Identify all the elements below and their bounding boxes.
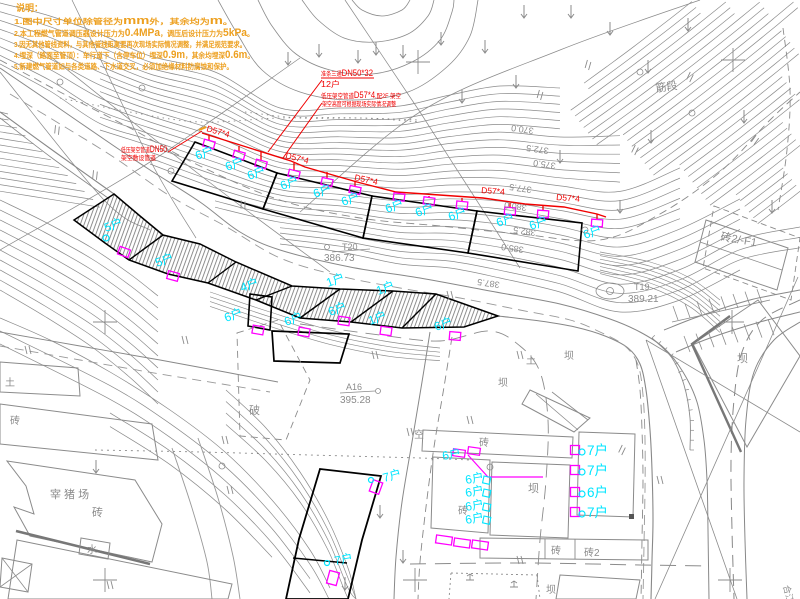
svg-text:D57*4: D57*4	[481, 185, 506, 197]
svg-text:3.因无其他管线资料，与其他管线距离要再次现场实际情况调整，: 3.因无其他管线资料，与其他管线距离要再次现场实际情况调整，并满足规范要求。	[14, 39, 246, 49]
svg-text:7户: 7户	[381, 466, 403, 485]
svg-text:7户: 7户	[587, 442, 608, 458]
svg-text:380.0: 380.0	[504, 200, 528, 213]
svg-text:6户: 6户	[581, 221, 604, 241]
svg-text:砖: 砖	[458, 504, 468, 517]
svg-text:7户: 7户	[587, 504, 608, 520]
svg-text:375.0: 375.0	[533, 158, 557, 171]
svg-text:土: 土	[526, 354, 536, 367]
svg-text:377.5: 377.5	[509, 182, 533, 195]
svg-text:说明：: 说明：	[16, 2, 43, 13]
svg-text:架空高度可根据现场实际情况调整: 架空高度可根据现场实际情况调整	[322, 99, 396, 108]
svg-text:372.5: 372.5	[526, 143, 550, 156]
svg-text:坝: 坝	[737, 351, 748, 365]
svg-text:砖: 砖	[10, 414, 20, 427]
svg-text:宰 猪 场: 宰 猪 场	[50, 487, 89, 501]
svg-text:低压架空管道DN50: 低压架空管道DN50	[121, 144, 167, 154]
svg-text:砖: 砖	[479, 436, 489, 449]
svg-text:D57*4: D57*4	[556, 192, 581, 204]
svg-text:T19: T19	[634, 282, 650, 292]
svg-text:6户: 6户	[441, 445, 462, 463]
svg-text:破: 破	[249, 403, 260, 417]
svg-text:12户: 12户	[321, 79, 340, 89]
svg-text:筋段: 筋段	[654, 78, 678, 95]
svg-text:1.图中尺寸单位除管径为mm外，其余均为m。: 1.图中尺寸单位除管径为mm外，其余均为m。	[14, 15, 233, 27]
svg-text:6户: 6户	[311, 180, 334, 200]
svg-text:架空敷设管道: 架空敷设管道	[121, 153, 156, 162]
svg-text:低压架空管道D57*4,配2F 架空: 低压架空管道D57*4,配2F 架空	[321, 90, 401, 100]
svg-text:6户: 6户	[587, 484, 608, 500]
svg-text:6户: 6户	[339, 188, 362, 208]
svg-text:7户: 7户	[587, 462, 608, 478]
svg-text:386.73: 386.73	[324, 253, 355, 264]
svg-text:砖2: 砖2	[584, 546, 600, 559]
svg-text:砖: 砖	[92, 505, 103, 519]
svg-text:A16: A16	[346, 382, 362, 392]
svg-text:坝: 坝	[498, 377, 508, 389]
svg-text:389.21: 389.21	[628, 294, 659, 305]
svg-text:土: 土	[5, 376, 15, 389]
svg-text:合江: 合江	[781, 584, 796, 599]
svg-text:砖: 砖	[551, 544, 561, 557]
svg-text:387.5: 387.5	[477, 277, 501, 290]
svg-text:坝: 坝	[528, 481, 539, 495]
svg-text:坝: 坝	[546, 584, 556, 596]
svg-text:6户: 6户	[193, 142, 216, 162]
svg-text:2.本工程燃气管道调压器设计压力为0.4MPa，调压后设计压: 2.本工程燃气管道调压器设计压力为0.4MPa，调压后设计压力为5kPa。	[14, 27, 254, 39]
svg-text:水: 水	[87, 544, 97, 556]
svg-text:7户: 7户	[333, 550, 354, 568]
svg-text:370.0: 370.0	[511, 123, 535, 136]
svg-text:1户: 1户	[324, 269, 347, 289]
svg-text:6户: 6户	[494, 209, 517, 229]
svg-text:6户: 6户	[223, 153, 246, 173]
svg-text:385.0: 385.0	[501, 242, 525, 255]
svg-text:395.28: 395.28	[340, 395, 371, 406]
svg-text:4.埋深（路面至管顶）：车行道下（含停车位）埋深0.9m，其: 4.埋深（路面至管顶）：车行道下（含停车位）埋深0.9m，其余均埋深0.6m。	[14, 49, 254, 61]
svg-text:空: 空	[414, 428, 424, 441]
svg-text:5.新建燃气管道如与各类道路、下水道交叉，必须加绝缘材料防腐: 5.新建燃气管道如与各类道路、下水道交叉，必须加绝缘材料防腐蚀和保护。	[14, 61, 233, 71]
svg-text:坝: 坝	[564, 350, 574, 362]
